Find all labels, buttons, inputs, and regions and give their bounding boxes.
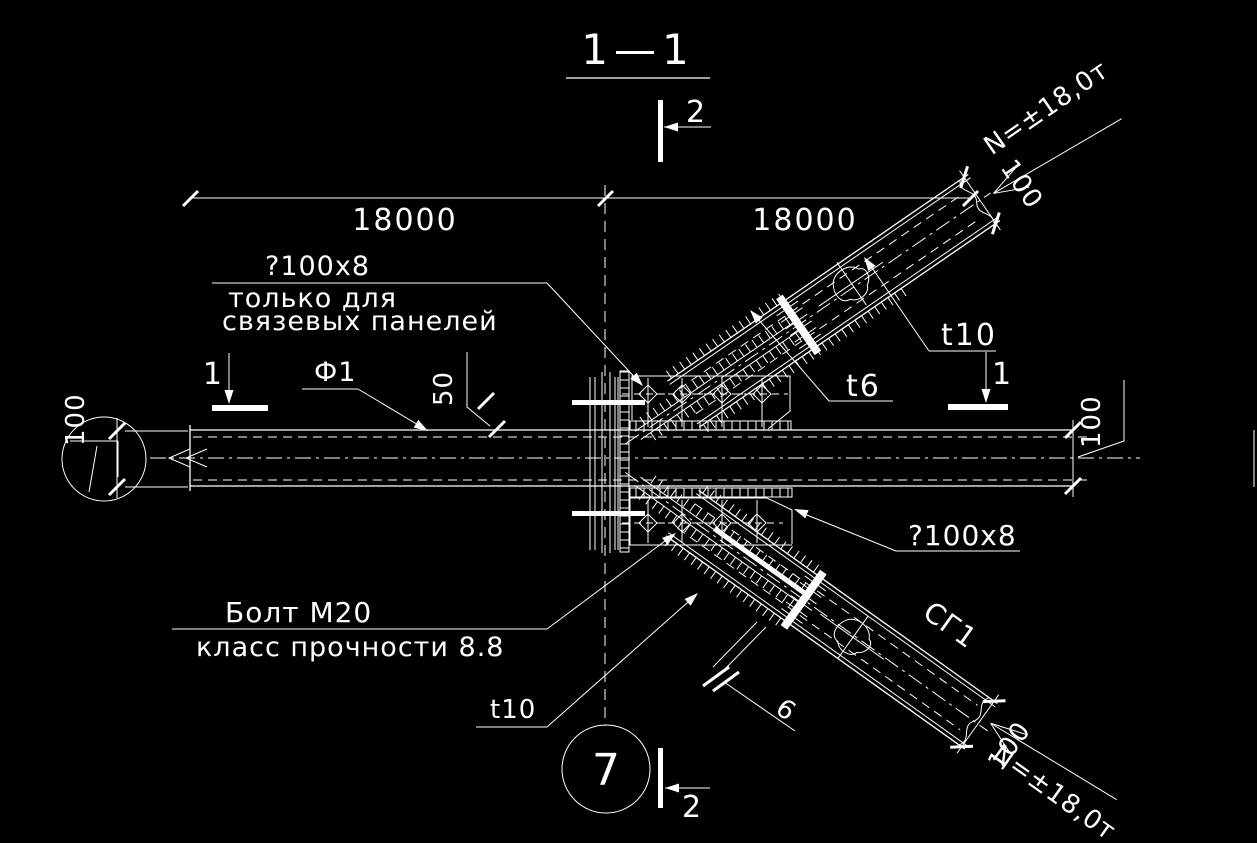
- dim-50-text: 50: [429, 371, 459, 406]
- section-arrow-icon: [664, 123, 678, 132]
- force-label-upper: N=±18,0т: [979, 55, 1115, 161]
- section-cut-bar: [212, 405, 268, 411]
- leader-arrow-icon: [792, 505, 808, 519]
- plate-note-line3: связевых панелей: [222, 306, 498, 337]
- dim-span: 18000 18000: [183, 191, 978, 238]
- section-label-1: 1: [203, 357, 224, 392]
- section-mark-1-right: 1: [948, 352, 1013, 410]
- section-arrow-icon: [665, 784, 679, 793]
- plate-note-lower-label: ?100x8: [908, 519, 1017, 552]
- plate-note-line1: ?100x8: [265, 251, 370, 282]
- section-label-2: 2: [686, 95, 707, 130]
- cad-drawing-viewport: 1—1 2 18000 18000 100: [0, 0, 1257, 843]
- dim-50: 50: [429, 352, 505, 437]
- section-mark-1-left: 1: [203, 353, 268, 411]
- beam-mark: Ф1: [302, 357, 430, 435]
- plate-note-lower: ?100x8: [792, 505, 1020, 552]
- bolt-lower: [572, 511, 645, 516]
- bolt-note-line1: Болт М20: [225, 596, 372, 629]
- weld-count-note: 6: [703, 622, 802, 731]
- detail-circle: [62, 417, 146, 501]
- force-label-lower: N=±18,0т: [987, 739, 1122, 843]
- section-cut-bar: [948, 404, 1008, 410]
- section-cut-bar: [658, 100, 663, 162]
- section-arrow-icon: [982, 389, 991, 403]
- grid-axis-number: 7: [592, 745, 620, 796]
- dim-100-left-text: 100: [61, 393, 91, 446]
- lower-brace: 100 N=±18,0т СГ1: [604, 407, 1167, 843]
- section-label-2: 2: [682, 790, 703, 825]
- section-cut-bar: [658, 748, 663, 808]
- leader-arrow-icon: [414, 420, 431, 435]
- weld-hatch: [634, 314, 794, 428]
- t10-lower-label: t10: [490, 695, 536, 725]
- plate-stack: [572, 371, 645, 553]
- dim-100-right: 100: [1065, 380, 1124, 497]
- section-mark-2-top: 2: [658, 95, 711, 162]
- dim-span-left: 18000: [352, 203, 457, 238]
- bolt-note: Болт М20 класс прочности 8.8: [172, 529, 679, 663]
- dim-100-left: 100: [61, 393, 188, 498]
- drawing-canvas: 1—1 2 18000 18000 100: [0, 0, 1257, 843]
- section-mark-2-bottom: 2: [658, 748, 710, 825]
- plate-note: ?100x8 только для связевых панелей: [212, 251, 646, 389]
- grid-axis-bubble: 7: [562, 725, 650, 813]
- section-arrow-icon: [225, 390, 234, 404]
- brace-break: [958, 177, 996, 228]
- t10-upper-label: t10: [941, 318, 997, 353]
- weld-count-label: 6: [770, 693, 802, 728]
- brace-break: [955, 696, 994, 746]
- weld-hatch: [620, 371, 629, 552]
- bolt-upper: [572, 400, 645, 405]
- t6-label: t6: [846, 369, 881, 404]
- weld-t10-lower-note: t10: [476, 590, 701, 727]
- brace-mark-label: СГ1: [917, 595, 983, 655]
- bolt-note-line2: класс прочности 8.8: [196, 632, 504, 663]
- dim-100-right-text: 100: [1077, 395, 1107, 448]
- section-label-1: 1: [992, 357, 1013, 392]
- dim-span-right: 18000: [752, 203, 857, 238]
- beam-mark-label: Ф1: [314, 357, 356, 388]
- drawing-title: 1—1: [581, 25, 694, 74]
- dim-100-brace-upper: 100: [994, 154, 1049, 214]
